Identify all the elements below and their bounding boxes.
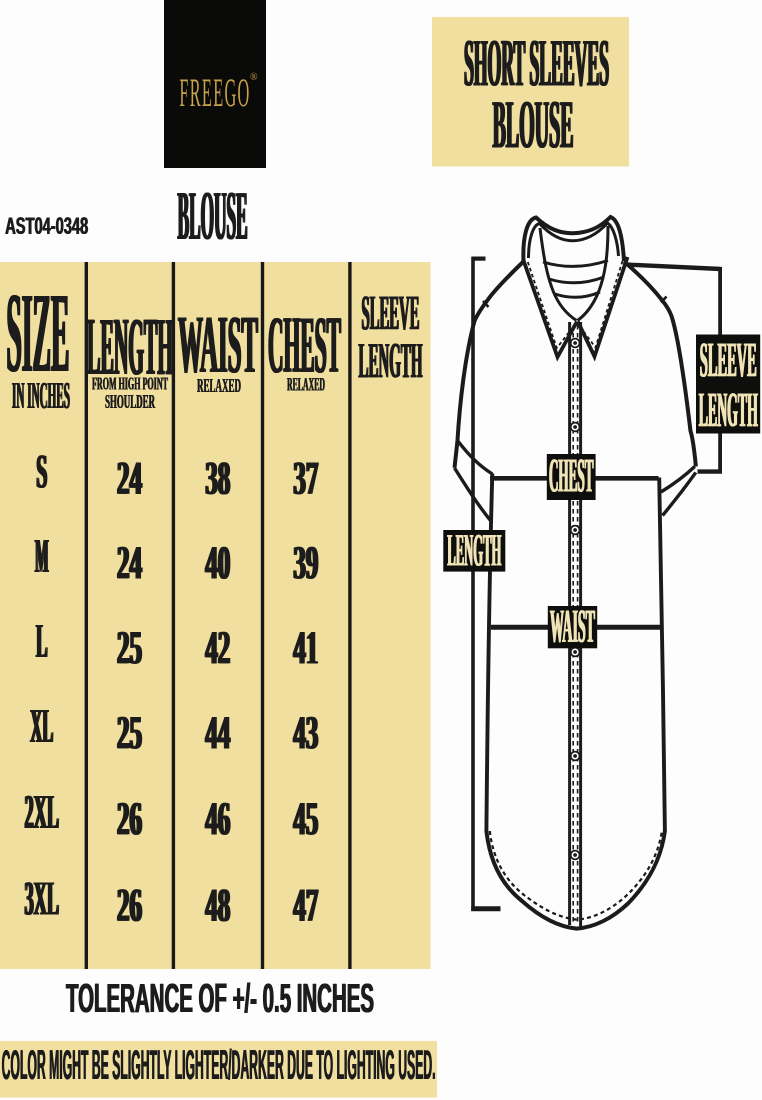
svg-text:3XL: 3XL	[25, 871, 59, 925]
svg-text:25: 25	[118, 707, 143, 760]
svg-text:BLOUSE: BLOUSE	[493, 86, 574, 162]
svg-text:26: 26	[118, 793, 143, 846]
svg-text:41: 41	[294, 622, 319, 675]
svg-text:LENGTH: LENGTH	[699, 381, 758, 437]
svg-text:FREEGO: FREEGO	[179, 71, 250, 116]
svg-text:S: S	[37, 444, 48, 498]
svg-text:42: 42	[206, 622, 231, 675]
svg-text:IN INCHES: IN INCHES	[13, 375, 71, 417]
svg-text:SHOULDER: SHOULDER	[105, 391, 156, 413]
svg-text:AST04-0348: AST04-0348	[6, 213, 89, 240]
svg-text:WAIST: WAIST	[551, 600, 596, 653]
svg-text:44: 44	[206, 707, 231, 760]
svg-text:M: M	[36, 529, 49, 583]
svg-text:COLOR MIGHT BE SLIGHTLY LIGHTE: COLOR MIGHT BE SLIGHTLY LIGHTER/DARKER D…	[2, 1042, 436, 1088]
svg-text:RELAXED: RELAXED	[287, 375, 325, 396]
svg-text:SLEEVE: SLEEVE	[700, 331, 757, 387]
svg-text:CHEST: CHEST	[549, 448, 594, 503]
svg-text:24: 24	[118, 537, 143, 590]
svg-text:40: 40	[206, 537, 231, 590]
svg-text:47: 47	[294, 880, 319, 933]
svg-text:25: 25	[118, 622, 143, 675]
svg-text:46: 46	[206, 793, 231, 846]
svg-text:38: 38	[206, 453, 231, 506]
svg-text:SLEEVE: SLEEVE	[362, 284, 420, 340]
svg-text:LENGTH: LENGTH	[359, 334, 423, 390]
svg-text:26: 26	[118, 880, 143, 933]
svg-text:L: L	[37, 614, 48, 667]
svg-text:BLOUSE: BLOUSE	[178, 177, 248, 254]
svg-text:48: 48	[206, 880, 231, 933]
svg-text:39: 39	[294, 537, 319, 590]
svg-text:RELAXED: RELAXED	[197, 375, 241, 397]
svg-text:LENGTH: LENGTH	[448, 526, 502, 576]
svg-text:XL: XL	[31, 699, 54, 753]
svg-text:45: 45	[294, 793, 319, 846]
svg-text:TOLERANCE OF +/- 0.5 INCHES: TOLERANCE OF +/- 0.5 INCHES	[67, 975, 375, 1021]
svg-text:®: ®	[250, 72, 258, 83]
svg-text:24: 24	[118, 453, 143, 506]
svg-text:37: 37	[294, 453, 319, 506]
svg-text:2XL: 2XL	[25, 784, 59, 838]
svg-text:43: 43	[294, 707, 319, 760]
